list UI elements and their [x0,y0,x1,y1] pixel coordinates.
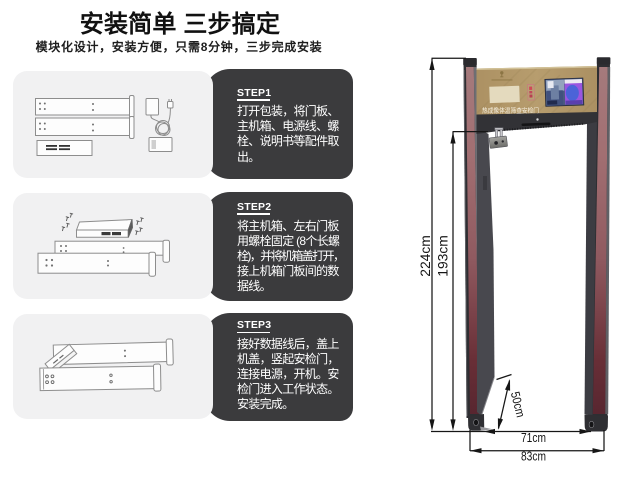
svg-text:193cm: 193cm [436,235,451,277]
svg-text:224cm: 224cm [418,235,433,277]
svg-text:71cm: 71cm [521,431,546,445]
svg-text:热成像体温筛查安检门: 热成像体温筛查安检门 [482,105,539,114]
svg-text:83cm: 83cm [521,450,546,464]
svg-text:50cm: 50cm [508,390,528,419]
